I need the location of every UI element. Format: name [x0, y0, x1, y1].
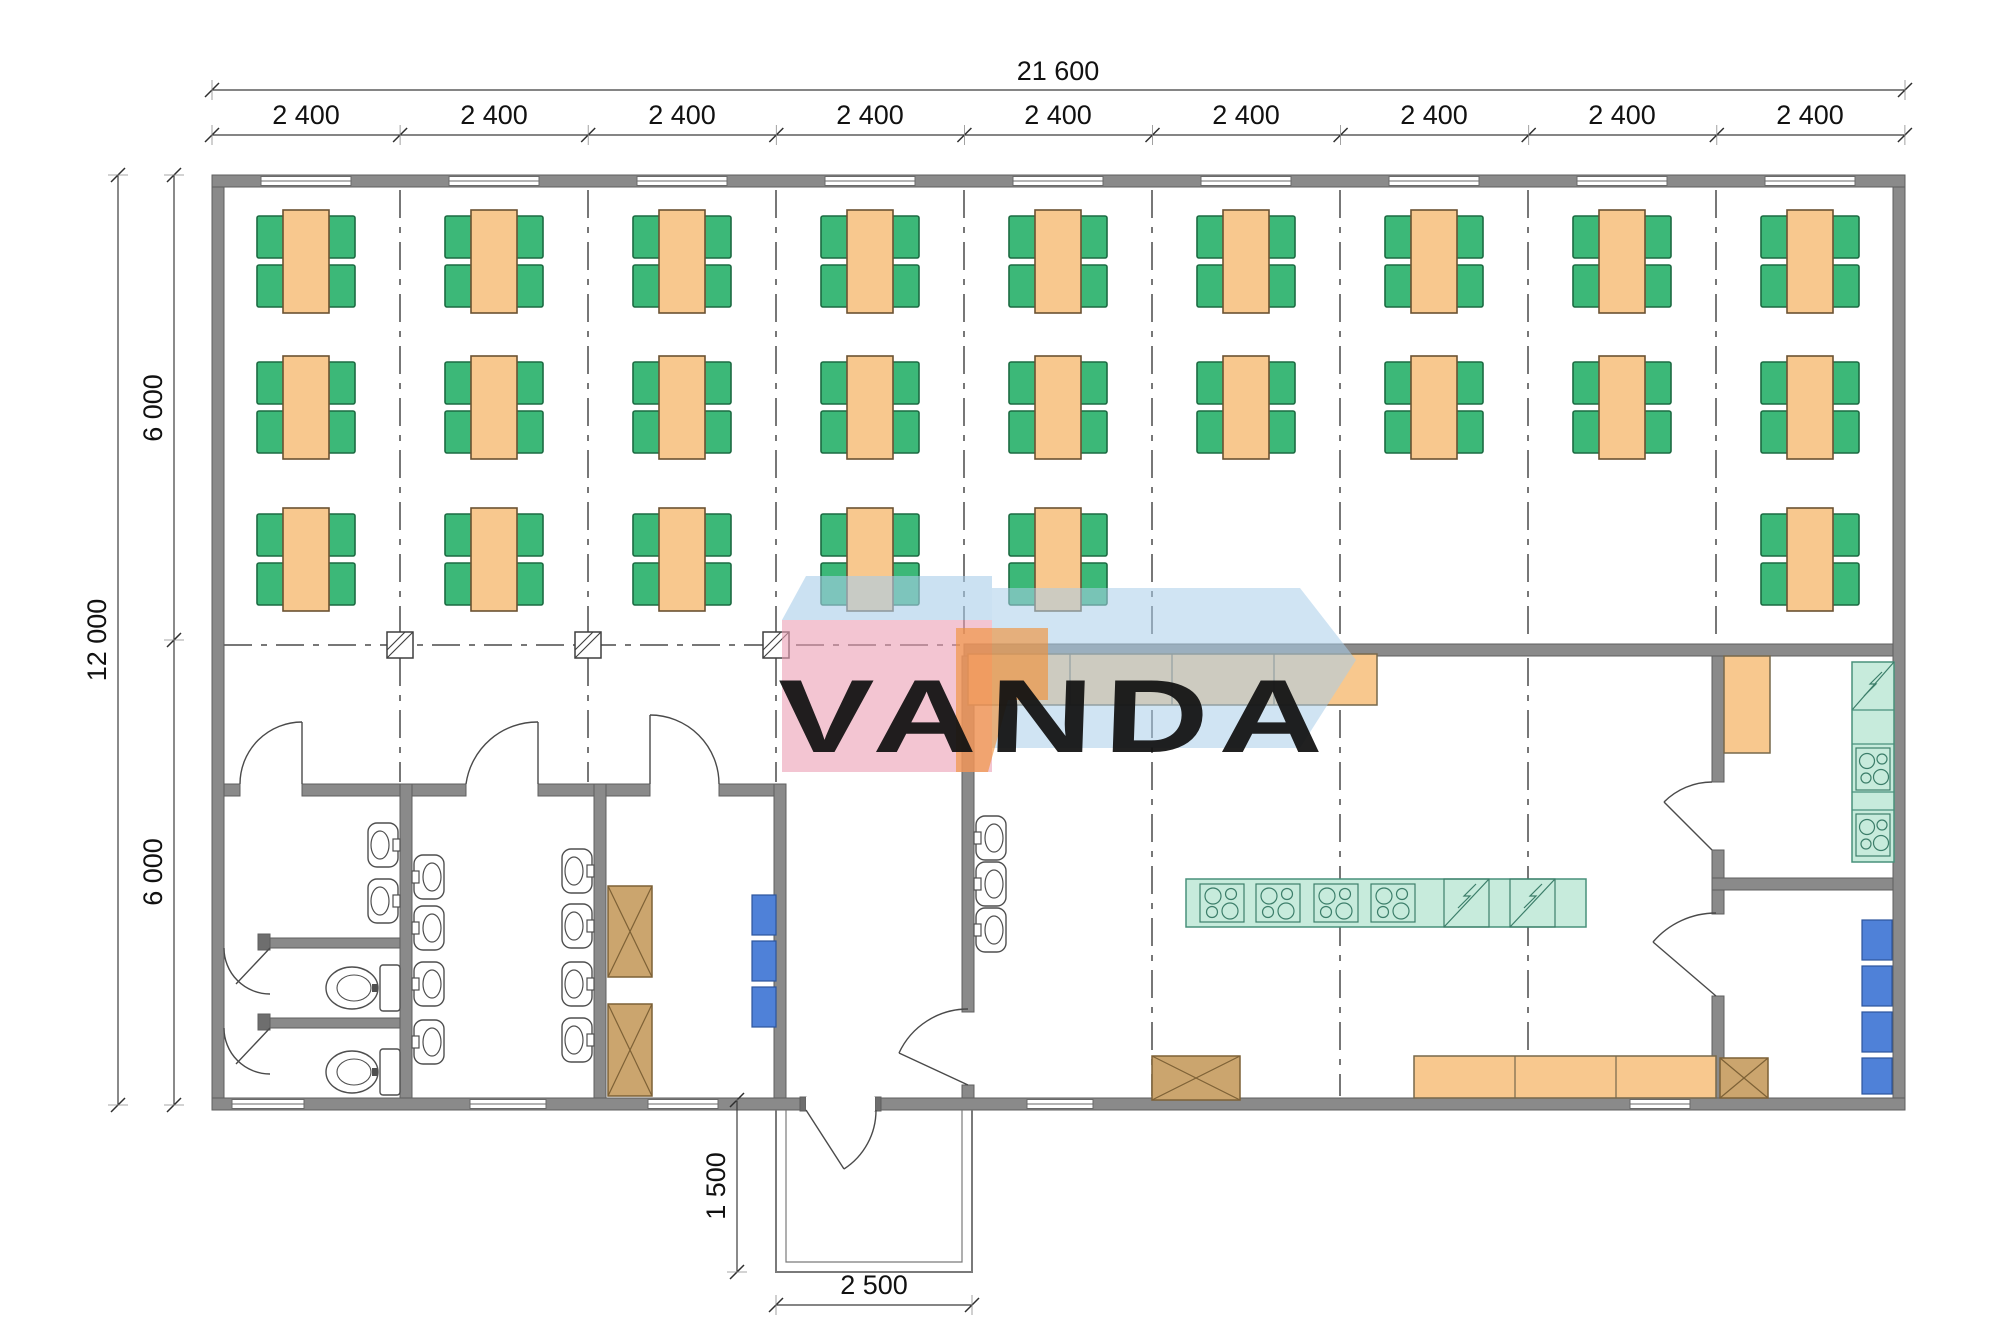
dining-table [283, 356, 329, 459]
dining-chair [445, 563, 473, 605]
dining-chair [821, 265, 849, 307]
dining-chair [891, 362, 919, 404]
toilet-bowl-inner [337, 975, 371, 1001]
dining-chair [1761, 514, 1789, 556]
wash-basin-washroom-bowl [423, 914, 441, 942]
interior-wall-sanitary-top [302, 784, 466, 796]
stall-door-leaf [236, 948, 270, 984]
dining-chair [1197, 411, 1225, 453]
wash-basin-kitchen-faucet [974, 924, 981, 936]
dining-chair [327, 514, 355, 556]
exterior-wall-left [212, 187, 224, 1098]
dining-chair [1009, 411, 1037, 453]
wash-basin-washroom-bowl [565, 912, 583, 940]
door-post [800, 1097, 806, 1111]
dining-chair [445, 411, 473, 453]
dining-chair [1267, 265, 1295, 307]
dining-table [1411, 356, 1457, 459]
dining-chair [703, 265, 731, 307]
dim-label-depth-segment: 6 000 [138, 838, 168, 906]
dining-chair [1009, 216, 1037, 258]
dining-chair [1079, 411, 1107, 453]
dining-table [1787, 508, 1833, 611]
dining-table [1787, 210, 1833, 313]
dining-chair [703, 411, 731, 453]
door-leaf-entrance [806, 1110, 844, 1169]
wash-basin-kitchen-bowl [985, 916, 1003, 944]
dining-table [1599, 210, 1645, 313]
dining-chair [1761, 362, 1789, 404]
dining-chair [633, 514, 661, 556]
entrance-opening [806, 1097, 875, 1111]
dining-chair [257, 514, 285, 556]
blue-unit [752, 941, 776, 981]
toilet-stall-wall [268, 938, 400, 948]
interior-wall-corridor-kitchen-stub [962, 1085, 974, 1098]
wash-basin-washroom-faucet [412, 922, 419, 934]
dining-chair [1831, 265, 1859, 307]
dining-chair [1573, 265, 1601, 307]
dining-table [471, 508, 517, 611]
dining-table [1599, 356, 1645, 459]
interior-wall-prep-room [1712, 656, 1724, 782]
dining-chair [891, 216, 919, 258]
dining-chair [891, 265, 919, 307]
dining-chair [633, 362, 661, 404]
dining-furniture-group [257, 210, 1859, 611]
floor-plan-canvas: 21 600 12 000 1 500 2 500 2 4002 4002 40… [0, 0, 2000, 1338]
door-swing-arc-entrance [844, 1110, 876, 1169]
dining-chair [1267, 216, 1295, 258]
toilet-bowl-inner [337, 1059, 371, 1085]
wash-basin-washroom-faucet [587, 1034, 594, 1046]
dining-chair [1079, 362, 1107, 404]
blue-unit [1862, 1012, 1892, 1052]
dining-chair [1079, 216, 1107, 258]
door-post [875, 1097, 881, 1111]
wash-basin-wc-faucet [393, 895, 400, 907]
dining-chair [1643, 265, 1671, 307]
dining-chair [1455, 411, 1483, 453]
dining-chair [1573, 411, 1601, 453]
dining-chair [1385, 362, 1413, 404]
dining-chair [703, 514, 731, 556]
dining-chair [1831, 411, 1859, 453]
dining-chair [703, 216, 731, 258]
dining-chair [1197, 362, 1225, 404]
wash-basin-washroom-faucet [412, 978, 419, 990]
dining-chair [1267, 362, 1295, 404]
wash-basin-washroom-bowl [565, 970, 583, 998]
dining-chair [1831, 514, 1859, 556]
watermark-text: VANDA [775, 659, 1337, 775]
dining-chair [1761, 563, 1789, 605]
dim-label-bay: 2 400 [1588, 100, 1656, 130]
dining-chair [821, 411, 849, 453]
wash-basin-washroom-bowl [423, 863, 441, 891]
door-post [258, 934, 270, 950]
interior-wall-sanitary-top [224, 784, 240, 796]
dining-chair [1385, 265, 1413, 307]
dining-chair [891, 514, 919, 556]
toilet-tank [380, 1049, 400, 1095]
dining-chair [1643, 411, 1671, 453]
watermark-layer: VANDA [775, 576, 1356, 775]
dining-chair [1761, 411, 1789, 453]
dining-table [1223, 210, 1269, 313]
dim-label-bay: 2 400 [460, 100, 528, 130]
dining-chair [1643, 362, 1671, 404]
dining-chair [633, 411, 661, 453]
dining-table [847, 210, 893, 313]
dim-label-bay: 2 400 [1400, 100, 1468, 130]
wash-basin-washroom-bowl [565, 857, 583, 885]
wash-basin-kitchen-bowl [985, 870, 1003, 898]
interior-wall-washroom-storage [594, 784, 606, 1098]
dining-chair [1385, 216, 1413, 258]
dining-chair [1831, 362, 1859, 404]
toilet-tank [380, 965, 400, 1011]
dining-chair [1455, 265, 1483, 307]
dining-chair [257, 216, 285, 258]
exterior-wall-right [1893, 187, 1905, 1098]
dining-chair [633, 216, 661, 258]
dining-table [847, 356, 893, 459]
interior-wall-sanitary-top [719, 784, 776, 796]
dining-chair [1009, 265, 1037, 307]
dining-chair [327, 411, 355, 453]
dim-label-porch-depth: 1 500 [701, 1152, 731, 1220]
dim-label-bay: 2 400 [1776, 100, 1844, 130]
dining-table [283, 508, 329, 611]
dining-chair [515, 216, 543, 258]
dining-chair [1455, 216, 1483, 258]
dining-chair [257, 265, 285, 307]
watermark-blue-band [782, 576, 992, 620]
toilet-flush [372, 984, 378, 992]
dining-chair [821, 514, 849, 556]
dining-chair [703, 563, 731, 605]
dim-label-total-depth: 12 000 [82, 599, 112, 682]
dining-chair [1267, 411, 1295, 453]
dining-chair [445, 362, 473, 404]
interior-wall-right-rooms-divider [1712, 878, 1893, 890]
door-swing-arc [1653, 913, 1716, 942]
dining-table [1035, 356, 1081, 459]
dining-chair [703, 362, 731, 404]
dining-chair [1079, 514, 1107, 556]
dim-label-porch-width: 2 500 [840, 1270, 908, 1300]
wash-basin-kitchen-faucet [974, 878, 981, 890]
dining-table [1411, 210, 1457, 313]
dining-table [659, 508, 705, 611]
dining-chair [327, 216, 355, 258]
dining-chair [1197, 265, 1225, 307]
cooking-island [1186, 879, 1586, 927]
wash-basin-kitchen-faucet [974, 832, 981, 844]
dining-chair [1197, 216, 1225, 258]
dining-table [283, 210, 329, 313]
door-post [258, 1014, 270, 1030]
dining-table [1223, 356, 1269, 459]
prep-room-counter [1724, 656, 1770, 753]
door-swing-arc [899, 1009, 968, 1053]
toilet-stall-wall [268, 1018, 400, 1028]
blue-unit [1862, 1058, 1892, 1094]
dining-chair [445, 216, 473, 258]
wash-basin-washroom-bowl [423, 1028, 441, 1056]
wash-basin-washroom-faucet [412, 1036, 419, 1048]
door-swing-arc [466, 722, 538, 784]
dining-chair [1455, 362, 1483, 404]
toilet-flush [372, 1068, 378, 1076]
dining-chair [633, 563, 661, 605]
door-swing-arc [1664, 782, 1712, 802]
dining-chair [1573, 362, 1601, 404]
wash-basin-washroom-bowl [565, 1026, 583, 1054]
door-leaf [1664, 802, 1712, 850]
wash-basin-washroom-faucet [587, 978, 594, 990]
dining-chair [327, 362, 355, 404]
dining-chair [1079, 265, 1107, 307]
porch-outline-outer [776, 1110, 972, 1272]
interior-wall-store-room-stub [1712, 890, 1724, 914]
dim-label-bay: 2 400 [1024, 100, 1092, 130]
dining-chair [1831, 563, 1859, 605]
porch-outline-inner [786, 1110, 962, 1262]
blue-unit [1862, 920, 1892, 960]
blue-unit [752, 895, 776, 935]
dining-chair [515, 411, 543, 453]
dim-label-bay: 2 400 [272, 100, 340, 130]
sanitary-fixtures-group [326, 816, 1006, 1095]
door-leaf [899, 1053, 968, 1085]
floor-plan-drawing: 21 600 12 000 1 500 2 500 2 4002 4002 40… [0, 0, 2000, 1338]
dim-label-bay: 2 400 [648, 100, 716, 130]
dining-chair [515, 362, 543, 404]
dining-chair [1385, 411, 1413, 453]
dining-chair [515, 514, 543, 556]
dining-chair [633, 265, 661, 307]
blue-unit [1862, 966, 1892, 1006]
door-swing-arc [650, 715, 719, 784]
dining-chair [1761, 216, 1789, 258]
wash-basin-washroom-bowl [423, 970, 441, 998]
kitchen-counter-bottom [1414, 1056, 1716, 1098]
dining-chair [1009, 514, 1037, 556]
dining-table [471, 210, 517, 313]
wash-basin-washroom-faucet [587, 920, 594, 932]
wash-basin-wc-faucet [393, 839, 400, 851]
dining-chair [257, 411, 285, 453]
dim-label-depth-segment: 6 000 [138, 374, 168, 442]
wash-basin-wc-bowl [371, 887, 389, 915]
interior-wall-wc-washroom [400, 784, 412, 1098]
dining-chair [821, 362, 849, 404]
dining-chair [1573, 216, 1601, 258]
door-swing-arc [240, 722, 302, 784]
wash-basin-washroom-faucet [412, 871, 419, 883]
dining-table [659, 210, 705, 313]
dining-chair [821, 216, 849, 258]
dining-chair [515, 265, 543, 307]
wash-basin-kitchen-bowl [985, 824, 1003, 852]
dining-chair [891, 411, 919, 453]
dining-table [659, 356, 705, 459]
door-leaf [1653, 942, 1716, 996]
dim-label-bay: 2 400 [1212, 100, 1280, 130]
dining-chair [327, 563, 355, 605]
dining-chair [1831, 216, 1859, 258]
dim-label-total-width: 21 600 [1017, 56, 1100, 86]
dim-label-bay: 2 400 [836, 100, 904, 130]
dining-chair [327, 265, 355, 307]
blue-unit [752, 987, 776, 1027]
dining-chair [257, 563, 285, 605]
wash-basin-wc-bowl [371, 831, 389, 859]
dining-chair [1761, 265, 1789, 307]
dining-chair [445, 265, 473, 307]
dining-table [1787, 356, 1833, 459]
dining-table [1035, 210, 1081, 313]
wash-basin-washroom-faucet [587, 865, 594, 877]
dining-chair [1009, 362, 1037, 404]
dining-chair [515, 563, 543, 605]
dining-chair [445, 514, 473, 556]
dining-chair [1643, 216, 1671, 258]
dining-table [471, 356, 517, 459]
stall-door-leaf [236, 1028, 270, 1064]
dining-chair [257, 362, 285, 404]
